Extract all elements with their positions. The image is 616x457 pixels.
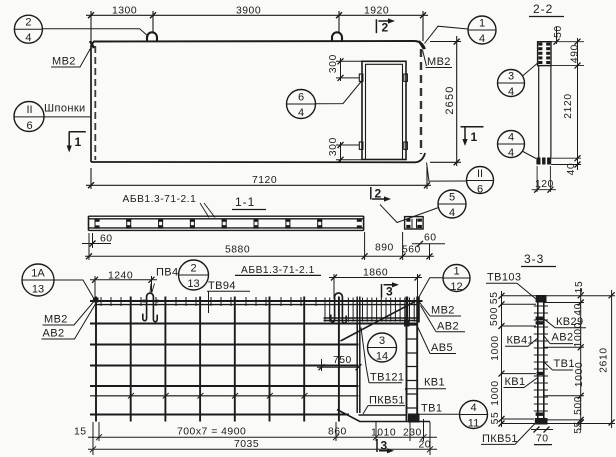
svg-text:4: 4 bbox=[470, 402, 476, 414]
svg-text:АБВ1.3-71-2.1: АБВ1.3-71-2.1 bbox=[123, 194, 197, 205]
svg-text:МВ2: МВ2 bbox=[44, 314, 68, 326]
svg-text:КВ29: КВ29 bbox=[556, 316, 584, 328]
svg-text:2650: 2650 bbox=[444, 85, 456, 114]
svg-text:ТВ121: ТВ121 bbox=[370, 372, 404, 384]
svg-text:ПКВ51: ПКВ51 bbox=[482, 433, 518, 445]
svg-text:4: 4 bbox=[508, 132, 514, 144]
svg-text:5880: 5880 bbox=[225, 244, 250, 255]
svg-text:4: 4 bbox=[298, 107, 304, 119]
svg-text:4: 4 bbox=[479, 33, 485, 45]
svg-text:60: 60 bbox=[424, 233, 437, 244]
svg-text:2: 2 bbox=[382, 21, 389, 35]
svg-text:50: 50 bbox=[553, 25, 564, 38]
svg-text:490: 490 bbox=[570, 44, 581, 63]
svg-text:1: 1 bbox=[75, 135, 82, 149]
svg-text:АВ2: АВ2 bbox=[437, 321, 459, 333]
svg-text:1А: 1А bbox=[31, 268, 45, 280]
svg-text:4: 4 bbox=[449, 207, 455, 219]
svg-text:2: 2 bbox=[190, 263, 196, 275]
svg-text:40: 40 bbox=[566, 163, 577, 176]
svg-text:55: 55 bbox=[573, 421, 584, 434]
svg-text:2120: 2120 bbox=[563, 93, 574, 118]
svg-text:1: 1 bbox=[479, 18, 485, 30]
svg-text:II: II bbox=[477, 168, 483, 180]
svg-text:4: 4 bbox=[508, 147, 514, 159]
svg-text:890: 890 bbox=[375, 243, 394, 254]
svg-text:2-2: 2-2 bbox=[533, 2, 553, 16]
svg-text:3-3: 3-3 bbox=[524, 252, 544, 266]
svg-text:3: 3 bbox=[381, 439, 388, 453]
svg-text:4: 4 bbox=[508, 86, 514, 98]
svg-text:2610: 2610 bbox=[599, 347, 610, 372]
svg-text:1860: 1860 bbox=[363, 267, 388, 278]
svg-text:ПВ4: ПВ4 bbox=[156, 267, 179, 279]
svg-text:1000: 1000 bbox=[490, 380, 501, 405]
svg-text:4: 4 bbox=[25, 32, 31, 44]
svg-text:120: 120 bbox=[535, 179, 554, 190]
svg-text:Шпонки: Шпонки bbox=[44, 103, 86, 115]
svg-text:12: 12 bbox=[450, 281, 462, 293]
svg-text:750: 750 bbox=[333, 355, 352, 366]
svg-text:14: 14 bbox=[376, 351, 388, 363]
svg-text:13: 13 bbox=[187, 278, 199, 290]
svg-text:300: 300 bbox=[328, 54, 339, 73]
svg-text:1000: 1000 bbox=[490, 335, 501, 360]
svg-text:13: 13 bbox=[32, 284, 44, 296]
svg-text:6: 6 bbox=[26, 120, 32, 132]
svg-text:3900: 3900 bbox=[236, 6, 261, 17]
svg-text:230: 230 bbox=[403, 428, 422, 439]
svg-text:55: 55 bbox=[489, 291, 500, 304]
svg-text:300: 300 bbox=[328, 137, 339, 156]
svg-text:АВ5: АВ5 bbox=[431, 342, 453, 354]
svg-text:500: 500 bbox=[489, 307, 500, 326]
svg-text:ТВ1: ТВ1 bbox=[421, 403, 442, 415]
svg-text:5: 5 bbox=[449, 192, 455, 204]
svg-text:ТВ103: ТВ103 bbox=[487, 272, 521, 284]
svg-text:1000: 1000 bbox=[574, 362, 585, 387]
svg-text:70: 70 bbox=[536, 434, 549, 445]
svg-text:1240: 1240 bbox=[108, 271, 133, 282]
svg-text:2: 2 bbox=[375, 187, 382, 201]
svg-text:7120: 7120 bbox=[252, 175, 277, 186]
svg-text:700х7 = 4900: 700х7 = 4900 bbox=[177, 427, 246, 438]
svg-text:55: 55 bbox=[490, 412, 501, 425]
svg-text:15: 15 bbox=[74, 427, 87, 438]
svg-text:АВ2: АВ2 bbox=[43, 328, 65, 340]
svg-text:II: II bbox=[26, 104, 32, 116]
svg-text:3: 3 bbox=[379, 335, 385, 347]
svg-text:6: 6 bbox=[298, 92, 304, 104]
svg-text:20: 20 bbox=[419, 440, 432, 451]
svg-text:АВ2: АВ2 bbox=[552, 332, 574, 344]
svg-text:1: 1 bbox=[471, 130, 478, 144]
svg-text:ПКВ51: ПКВ51 bbox=[369, 395, 405, 407]
svg-text:КВ1: КВ1 bbox=[505, 376, 526, 388]
svg-text:7035: 7035 bbox=[234, 439, 259, 450]
svg-text:1010: 1010 bbox=[371, 428, 396, 439]
svg-text:860: 860 bbox=[328, 427, 347, 438]
svg-text:ТВ1: ТВ1 bbox=[554, 358, 575, 370]
svg-text:МВ2: МВ2 bbox=[52, 56, 76, 68]
svg-text:3: 3 bbox=[508, 71, 514, 83]
svg-text:ТВ94: ТВ94 bbox=[208, 280, 236, 292]
svg-text:МВ2: МВ2 bbox=[431, 305, 455, 317]
svg-text:11: 11 bbox=[468, 418, 479, 430]
svg-text:60: 60 bbox=[100, 234, 113, 245]
svg-text:40: 40 bbox=[573, 303, 584, 316]
svg-text:1: 1 bbox=[453, 266, 459, 278]
svg-text:1920: 1920 bbox=[364, 6, 389, 17]
svg-text:500: 500 bbox=[573, 396, 584, 415]
svg-text:2: 2 bbox=[25, 17, 31, 29]
svg-text:6: 6 bbox=[477, 184, 483, 196]
svg-text:3: 3 bbox=[386, 285, 393, 299]
svg-text:15: 15 bbox=[574, 281, 585, 294]
svg-text:АБВ1.3-71-2.1: АБВ1.3-71-2.1 bbox=[241, 265, 315, 276]
svg-text:КВ1: КВ1 bbox=[424, 377, 445, 389]
svg-text:1-1: 1-1 bbox=[235, 195, 255, 209]
svg-text:1300: 1300 bbox=[112, 6, 137, 17]
svg-text:МВ2: МВ2 bbox=[427, 56, 451, 68]
